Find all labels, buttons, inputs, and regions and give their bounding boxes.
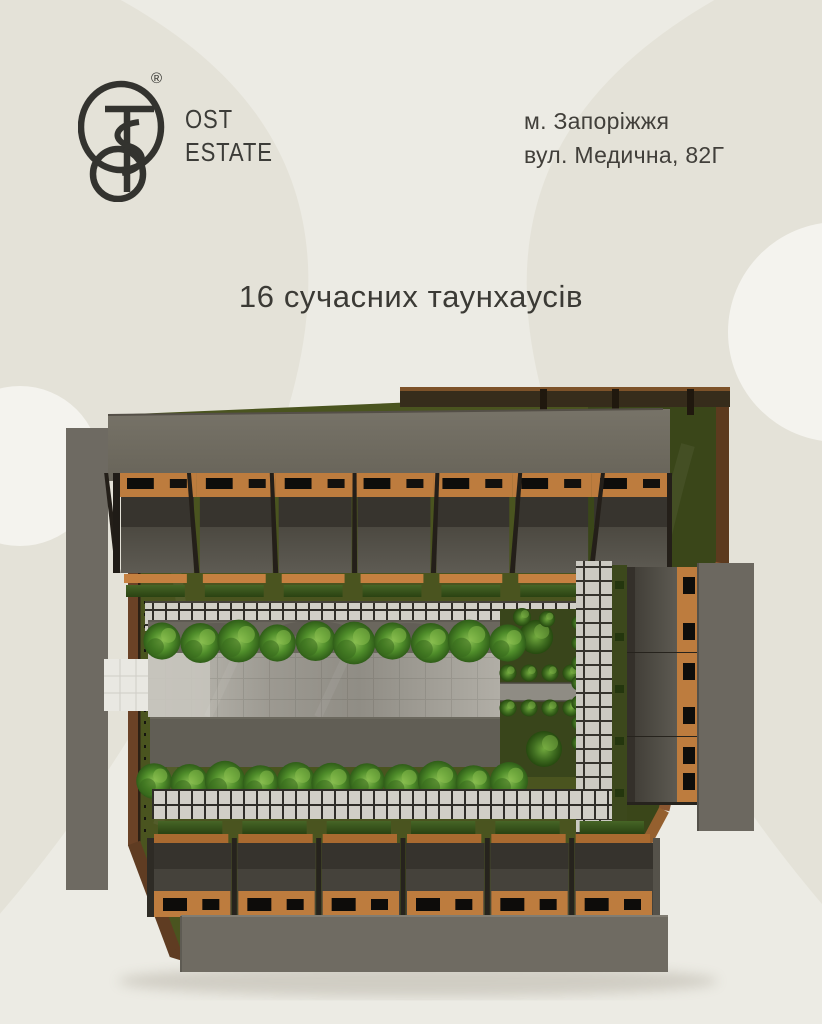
right-block-roof [697, 563, 754, 831]
address-city: м. Запоріжжя [524, 104, 724, 138]
top-row-roof [108, 409, 670, 481]
site-plan-render [88, 385, 748, 1015]
real-estate-poster: ® OST ESTATE м. Запоріжжя вул. Медична, … [0, 0, 822, 1024]
site-plan-image [88, 385, 748, 1015]
brand-name: OST ESTATE [185, 103, 288, 169]
brand-name-line1: OST [185, 103, 273, 136]
entrance-path [104, 659, 152, 711]
right-block-units [627, 567, 700, 805]
bottom-row-roof [181, 915, 668, 972]
central-lower-roof [150, 717, 506, 767]
right-townhouse-block [627, 563, 754, 831]
address-street: вул. Медична, 82Г [524, 138, 724, 172]
ost-estate-logo-icon [78, 80, 173, 202]
headline: 16 сучасних таунхаусів [0, 279, 822, 315]
bottom-townhouse-row [147, 821, 668, 972]
brand-name-line2: ESTATE [185, 136, 273, 169]
lower-walk-path [152, 789, 612, 819]
trademark-symbol: ® [151, 70, 162, 87]
address-block: м. Запоріжжя вул. Медична, 82Г [524, 104, 724, 172]
